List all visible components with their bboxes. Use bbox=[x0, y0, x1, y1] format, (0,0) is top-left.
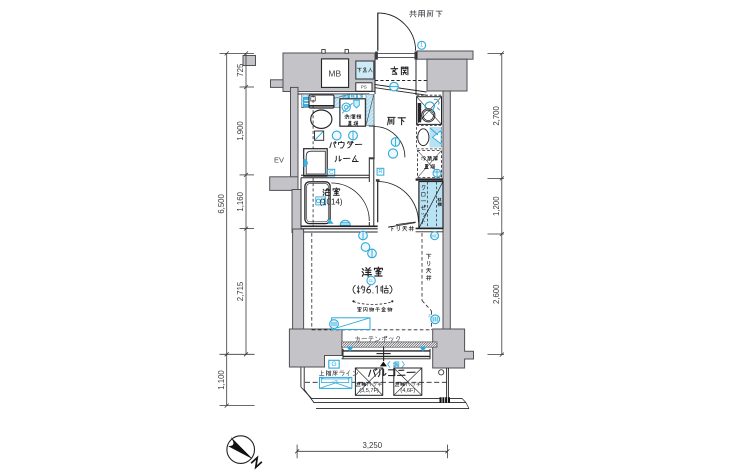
svg-text:2,715: 2,715 bbox=[236, 281, 245, 301]
svg-text:2,600: 2,600 bbox=[492, 284, 501, 304]
svg-text:725: 725 bbox=[236, 63, 245, 77]
svg-text:1: 1 bbox=[420, 43, 423, 49]
svg-text:(1014): (1014) bbox=[319, 197, 342, 206]
svg-text:1,900: 1,900 bbox=[236, 121, 245, 141]
svg-text:PS: PS bbox=[361, 85, 367, 90]
svg-text:R: R bbox=[378, 169, 382, 175]
svg-text:6,500: 6,500 bbox=[217, 193, 226, 213]
svg-text:2: 2 bbox=[428, 313, 431, 318]
svg-text:G: G bbox=[331, 361, 336, 368]
svg-text:2,700: 2,700 bbox=[492, 105, 501, 125]
svg-text:~7F: ~7F bbox=[331, 378, 339, 383]
svg-text:(4,6F): (4,6F) bbox=[400, 388, 415, 394]
svg-text:1,200: 1,200 bbox=[492, 196, 501, 216]
svg-text:1,160: 1,160 bbox=[236, 191, 245, 211]
svg-text:MB: MB bbox=[328, 69, 341, 79]
svg-text:3,250: 3,250 bbox=[363, 441, 383, 450]
svg-text:EV: EV bbox=[274, 156, 284, 165]
svg-text:MC: MC bbox=[431, 234, 438, 239]
svg-text:(3,5,7F): (3,5,7F) bbox=[359, 388, 379, 394]
svg-text:1,100: 1,100 bbox=[217, 370, 226, 390]
svg-text:CL: CL bbox=[369, 279, 374, 283]
